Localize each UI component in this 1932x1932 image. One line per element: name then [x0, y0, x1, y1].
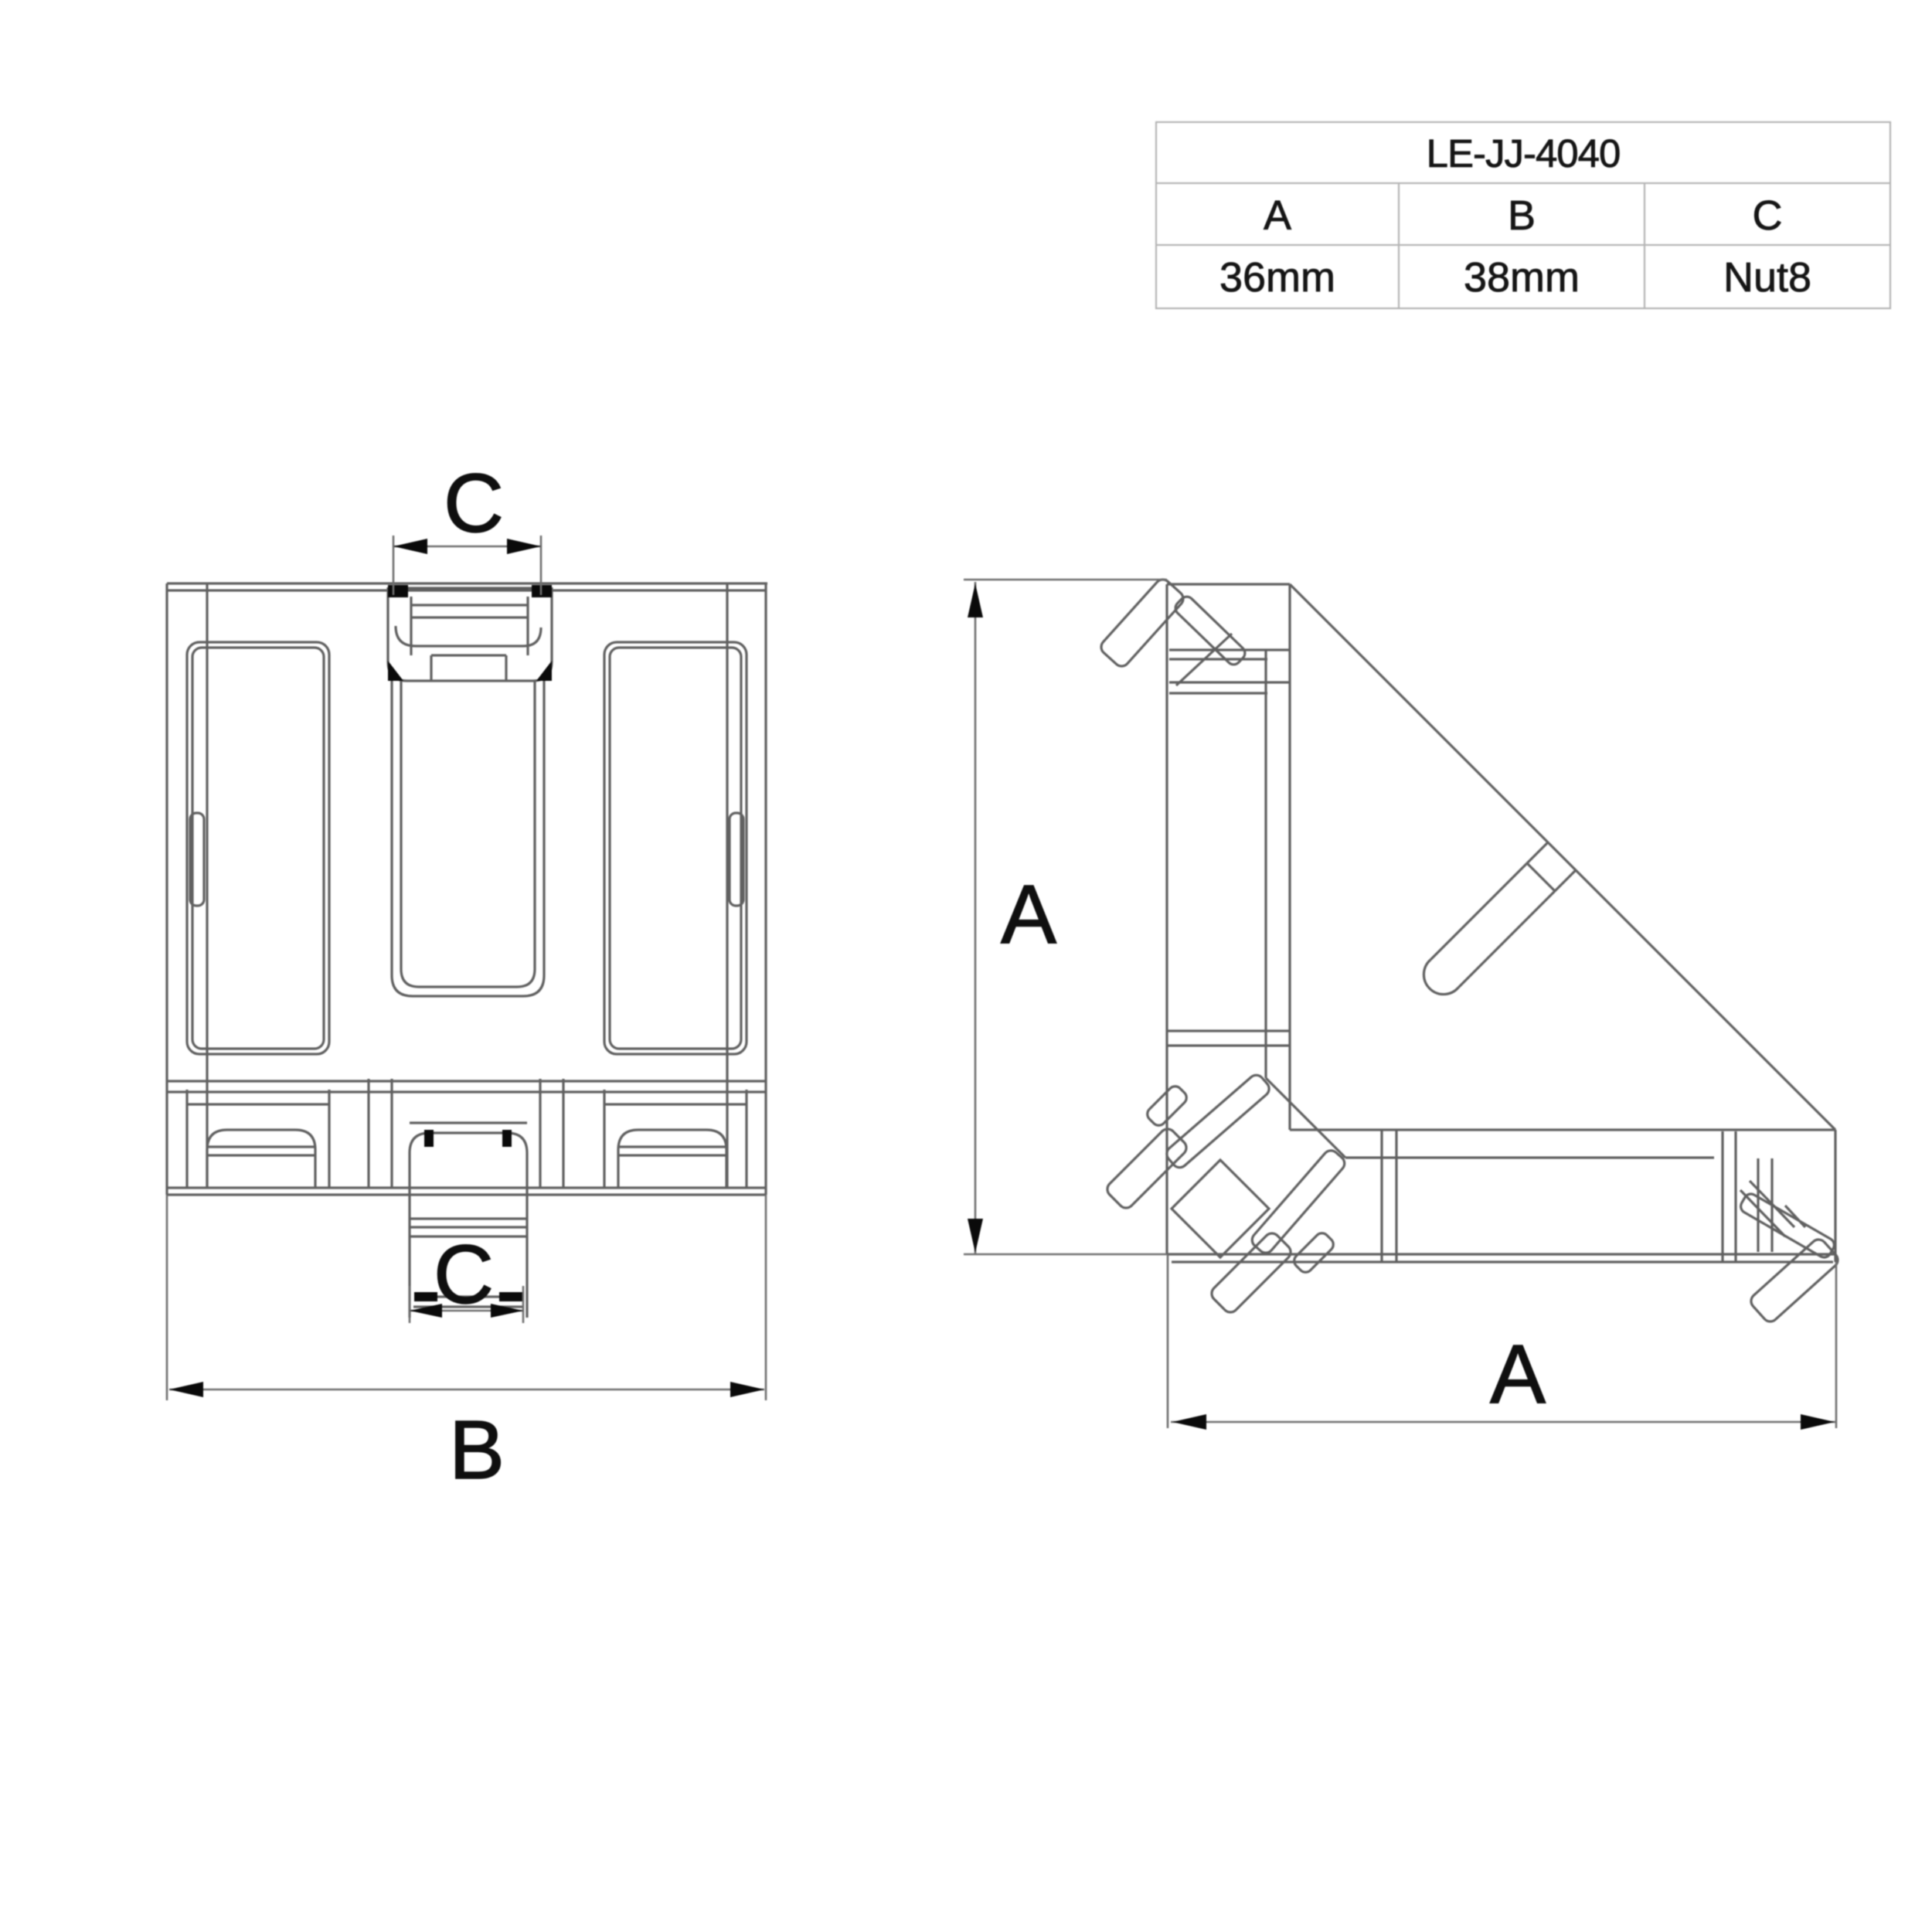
svg-text:B: B	[449, 1403, 505, 1496]
svg-text:A: A	[1490, 1327, 1546, 1420]
svg-text:C: C	[444, 456, 504, 549]
svg-text:38mm: 38mm	[1464, 254, 1580, 301]
svg-text:C: C	[434, 1227, 494, 1321]
svg-text:A: A	[1264, 192, 1291, 239]
svg-text:LE-JJ-4040: LE-JJ-4040	[1427, 131, 1621, 175]
svg-text:C: C	[1753, 192, 1783, 239]
svg-text:B: B	[1508, 192, 1536, 239]
svg-text:Nut8: Nut8	[1723, 254, 1811, 301]
svg-text:A: A	[1001, 867, 1056, 961]
svg-text:36mm: 36mm	[1219, 254, 1335, 301]
